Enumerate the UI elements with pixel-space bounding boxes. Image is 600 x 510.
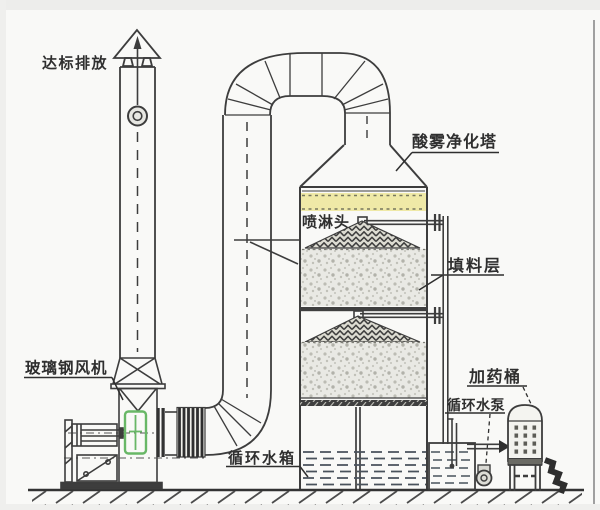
label-emission: 达标排放 [42,54,108,72]
dosing-pipe [467,440,510,453]
diagram-canvas: 达标排放 [0,0,600,510]
tank-water [303,452,426,485]
flow-arrow-head [134,36,142,49]
page-edge-top [0,0,600,10]
demister-band [301,193,426,211]
label-packing: 填料层 [448,256,502,275]
tower-cone [300,145,427,191]
circulation-pump [450,464,492,486]
label-fan-leader [24,378,123,401]
page-edge-left [0,0,6,510]
label-tower: 酸雾净化塔 [412,132,497,151]
label-tank-leader [226,467,308,478]
label-barrel: 加药桶 [468,367,522,386]
barrel-stand [508,465,542,491]
support-tray-2 [300,400,427,406]
duct-riser [223,115,271,398]
label-spray-head: 喷淋头 [302,213,350,231]
chimney-stack [114,30,160,358]
inlet-elbow [205,390,271,455]
ground [28,490,584,505]
process-diagram: 达标排放 [0,0,600,510]
drain-hose [545,460,564,493]
fan-base [61,483,162,489]
pump-icon [477,471,492,486]
packing-bed-2 [301,342,426,398]
spray-header-leader [234,240,299,264]
label-tank: 循环水箱 [228,449,296,467]
sight-glass-icon [128,107,147,126]
packing-bed-1 [301,249,426,306]
label-fan: 玻璃钢风机 [25,358,108,377]
barrel-media [511,424,540,458]
purification-tower: 喷淋头 [234,145,443,489]
packing-mound-2 [305,316,420,342]
fan-motor [65,420,125,482]
label-packing-leader [419,275,504,290]
flex-connector [177,408,205,458]
circulation-pipe [443,216,456,466]
dosing-barrel [508,405,564,493]
duct-arch [225,53,390,145]
label-pump: 循环水泵 [447,397,505,413]
